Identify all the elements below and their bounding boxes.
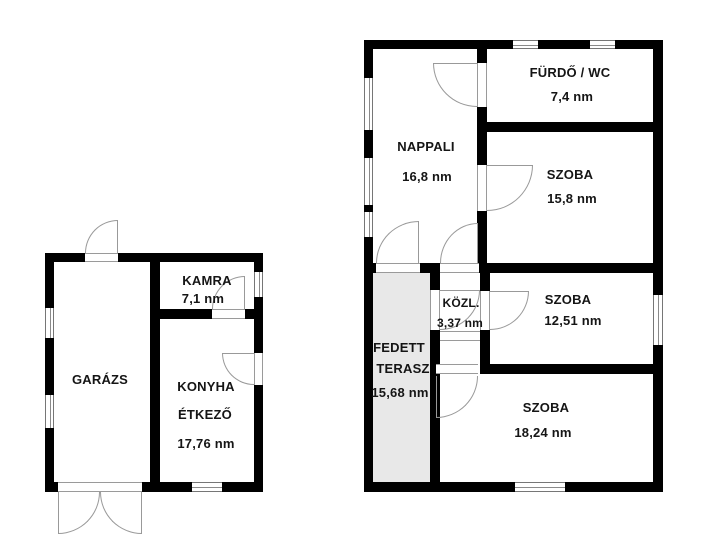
room-label-szoba2: SZOBA [545,292,592,307]
door-opening [436,364,478,374]
window [254,272,263,297]
room-label-szoba3: SZOBA [523,400,570,415]
room-area-terasz: 15,68 nm [371,385,428,400]
door-leaf [244,276,245,309]
room-area-szoba1: 15,8 nm [547,191,597,206]
room-label-terasz-line1: FEDETT [373,340,425,355]
door-leaf [222,353,254,354]
door-opening [376,263,420,273]
door-leaf [418,221,419,263]
door-swing-arc [440,223,478,263]
room-area-konyha: 17,76 nm [177,436,234,451]
door-leaf [477,223,478,263]
door-opening [477,63,487,107]
room-label-nappali: NAPPALI [397,139,455,154]
wall [45,253,263,262]
room-label-furdo: FÜRDŐ / WC [530,65,611,80]
door-opening [440,263,479,273]
room-label-kamra: KAMRA [182,273,231,288]
floor-plan: FÜRDŐ / WC 7,4 nm NAPPALI 16,8 nm SZOBA … [0,0,708,543]
window [590,40,615,49]
door-opening [477,165,487,211]
door-opening [440,331,480,341]
door-leaf [487,165,533,166]
window [364,78,373,130]
room-area-furdo: 7,4 nm [551,89,593,104]
room-area-kamra: 7,1 nm [182,291,224,306]
door-leaf [433,63,477,64]
wall [480,364,663,374]
door-leaf [58,492,59,534]
door-leaf [141,492,142,534]
door-opening [254,353,263,385]
window [364,158,373,205]
room-label-garazs: GARÁZS [72,372,128,387]
window [513,40,538,49]
door-opening [85,253,118,262]
door-swing-arc [490,291,529,330]
door-opening [58,482,142,492]
door-swing-arc [58,492,100,534]
wall [45,253,54,492]
door-swing-arc [487,165,533,211]
room-label-etkezo: ÉTKEZŐ [178,407,232,422]
room-label-konyha: KONYHA [177,379,235,394]
wall [150,309,263,319]
window [45,308,54,338]
room-label-kozl: KÖZL. [443,296,480,310]
window [515,482,565,492]
room-area-szoba3: 18,24 nm [514,425,571,440]
door-swing-arc [433,63,477,107]
door-swing-arc [436,376,478,418]
room-area-kozl: 3,37 nm [437,316,483,330]
wall [364,482,663,492]
room-area-nappali: 16,8 nm [402,169,452,184]
window [653,295,663,345]
window [45,395,54,428]
door-leaf [436,376,437,418]
terrace-area [373,273,430,482]
wall [477,122,663,132]
door-swing-arc [85,220,118,253]
door-leaf [117,220,118,253]
room-label-szoba1: SZOBA [547,167,594,182]
window [192,482,222,492]
room-area-szoba2: 12,51 nm [544,313,601,328]
door-swing-arc [376,221,419,263]
door-leaf [440,290,480,291]
door-swing-arc [100,492,142,534]
door-opening [212,309,245,319]
wall [150,262,160,482]
door-leaf [490,291,529,292]
room-label-terasz-line2: TERASZ [376,361,429,376]
window [364,212,373,237]
